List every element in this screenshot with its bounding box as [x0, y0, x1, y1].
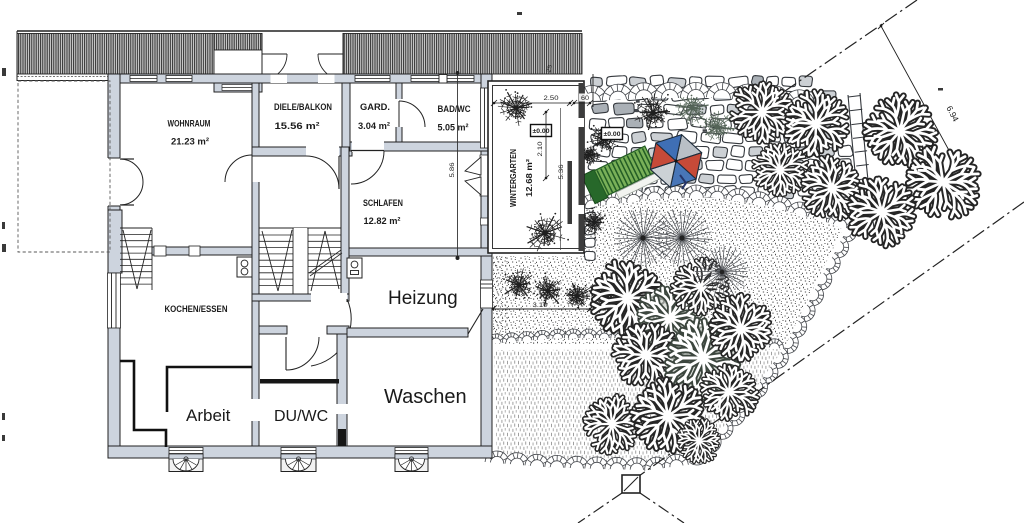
- svg-text:±0.00: ±0.00: [604, 131, 622, 138]
- svg-text:12.82 m²: 12.82 m²: [364, 216, 401, 227]
- svg-text:DU/WC: DU/WC: [274, 408, 328, 425]
- svg-text:12.68 m²: 12.68 m²: [524, 159, 534, 197]
- svg-text:15.56 m²: 15.56 m²: [275, 121, 320, 132]
- svg-text:WINTERGARTEN: WINTERGARTEN: [508, 149, 518, 207]
- svg-text:±0.00: ±0.00: [533, 128, 551, 135]
- svg-text:WOHNRAUM: WOHNRAUM: [168, 119, 211, 130]
- svg-text:2.50: 2.50: [544, 95, 559, 102]
- svg-text:GARD.: GARD.: [360, 102, 390, 113]
- svg-text:DIELE/BALKON: DIELE/BALKON: [274, 102, 332, 113]
- svg-text:21.23 m²: 21.23 m²: [171, 137, 209, 148]
- svg-text:3.04 m²: 3.04 m²: [358, 121, 390, 132]
- svg-text:60: 60: [581, 95, 589, 102]
- svg-text:5.36: 5.36: [558, 164, 565, 179]
- svg-text:Arbeit: Arbeit: [186, 406, 231, 425]
- svg-text:SCHLAFEN: SCHLAFEN: [363, 198, 403, 209]
- svg-text:2.10: 2.10: [537, 141, 544, 156]
- svg-text:BAD/WC: BAD/WC: [438, 104, 471, 115]
- svg-text:5.86: 5.86: [449, 162, 456, 177]
- svg-text:KOCHEN/ESSEN: KOCHEN/ESSEN: [165, 304, 228, 315]
- svg-text:Waschen: Waschen: [384, 386, 467, 408]
- svg-text:5.05 m²: 5.05 m²: [438, 123, 469, 134]
- svg-text:Heizung: Heizung: [388, 288, 458, 309]
